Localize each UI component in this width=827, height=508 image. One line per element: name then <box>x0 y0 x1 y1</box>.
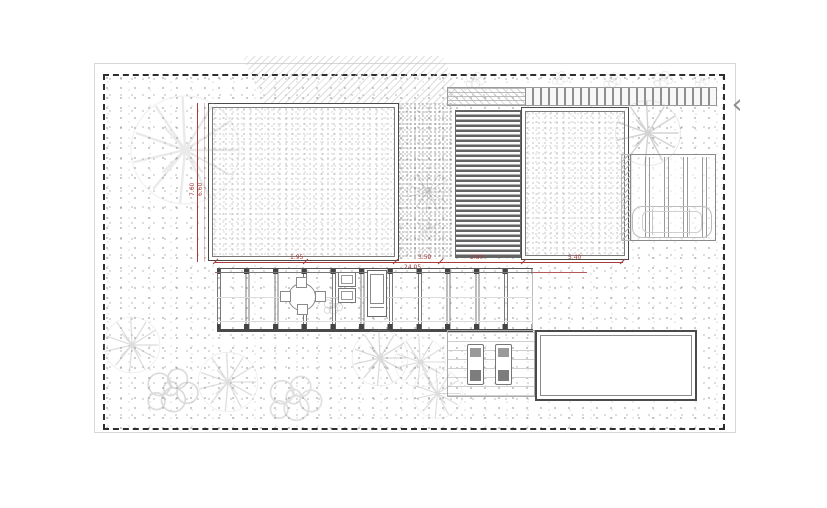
car <box>632 206 712 238</box>
side-table <box>338 272 356 287</box>
carport <box>630 154 716 241</box>
slat-fence <box>525 87 717 106</box>
dimension-label: 3.50 <box>418 255 431 261</box>
chevron-left-icon[interactable]: ‹ <box>726 90 748 120</box>
pool-deck <box>447 330 535 397</box>
roof-gravel-texture <box>212 107 395 257</box>
dimension-label: 7.60 <box>190 183 196 196</box>
car-windshield-line <box>652 209 653 235</box>
dimension-line-horizontal <box>215 262 623 263</box>
pool-water-edge <box>540 335 692 396</box>
dimension-label: 1.95 <box>290 255 303 261</box>
chair <box>315 291 326 302</box>
dimension-label: 6.60 <box>198 183 204 196</box>
sun-lounger <box>495 344 512 385</box>
sun-lounger <box>467 344 484 385</box>
building-roof-right <box>521 107 629 260</box>
car-rear-window-line <box>689 209 690 235</box>
chair <box>280 291 291 302</box>
roof-gravel-texture <box>525 111 625 256</box>
hatched-strip <box>240 56 460 104</box>
site-plan-viewer: 7.60 6.60 1.95 3.50 3.80 5.40 24.05 <box>0 0 827 508</box>
chair <box>296 277 307 288</box>
chair <box>297 304 308 315</box>
dimension-label: 5.40 <box>568 255 581 261</box>
dimension-label: 3.80 <box>470 255 483 261</box>
wood-deck <box>455 110 521 258</box>
daybed-mattress <box>370 274 384 304</box>
daybed <box>367 270 387 317</box>
planted-courtyard <box>398 103 454 259</box>
swimming-pool <box>535 330 697 401</box>
daybed-line <box>370 307 384 308</box>
side-table <box>338 288 356 303</box>
pergola-canopy <box>447 87 526 106</box>
building-roof-left <box>208 103 399 261</box>
dimension-extension-line <box>204 103 205 262</box>
